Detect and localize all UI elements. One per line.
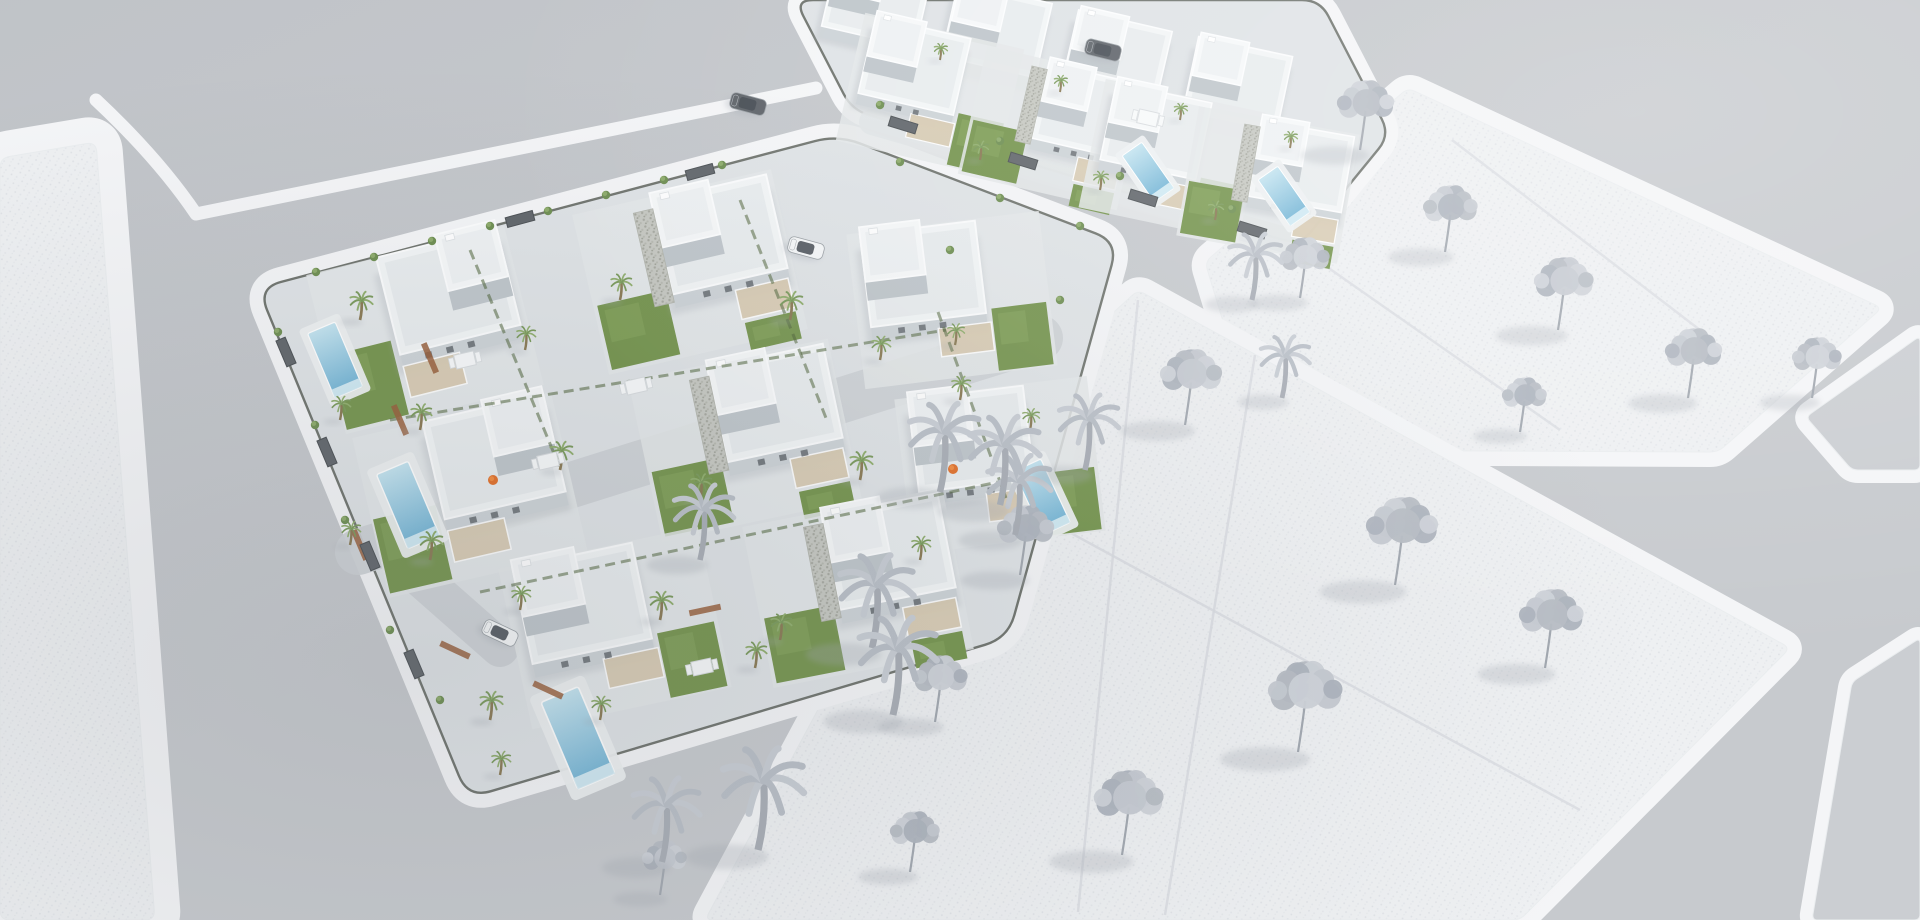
vignette-light — [0, 0, 1920, 920]
layer-vignette — [0, 0, 1920, 920]
architectural-render-stage — [0, 0, 1920, 920]
site-plan-3d-render — [0, 0, 1920, 920]
